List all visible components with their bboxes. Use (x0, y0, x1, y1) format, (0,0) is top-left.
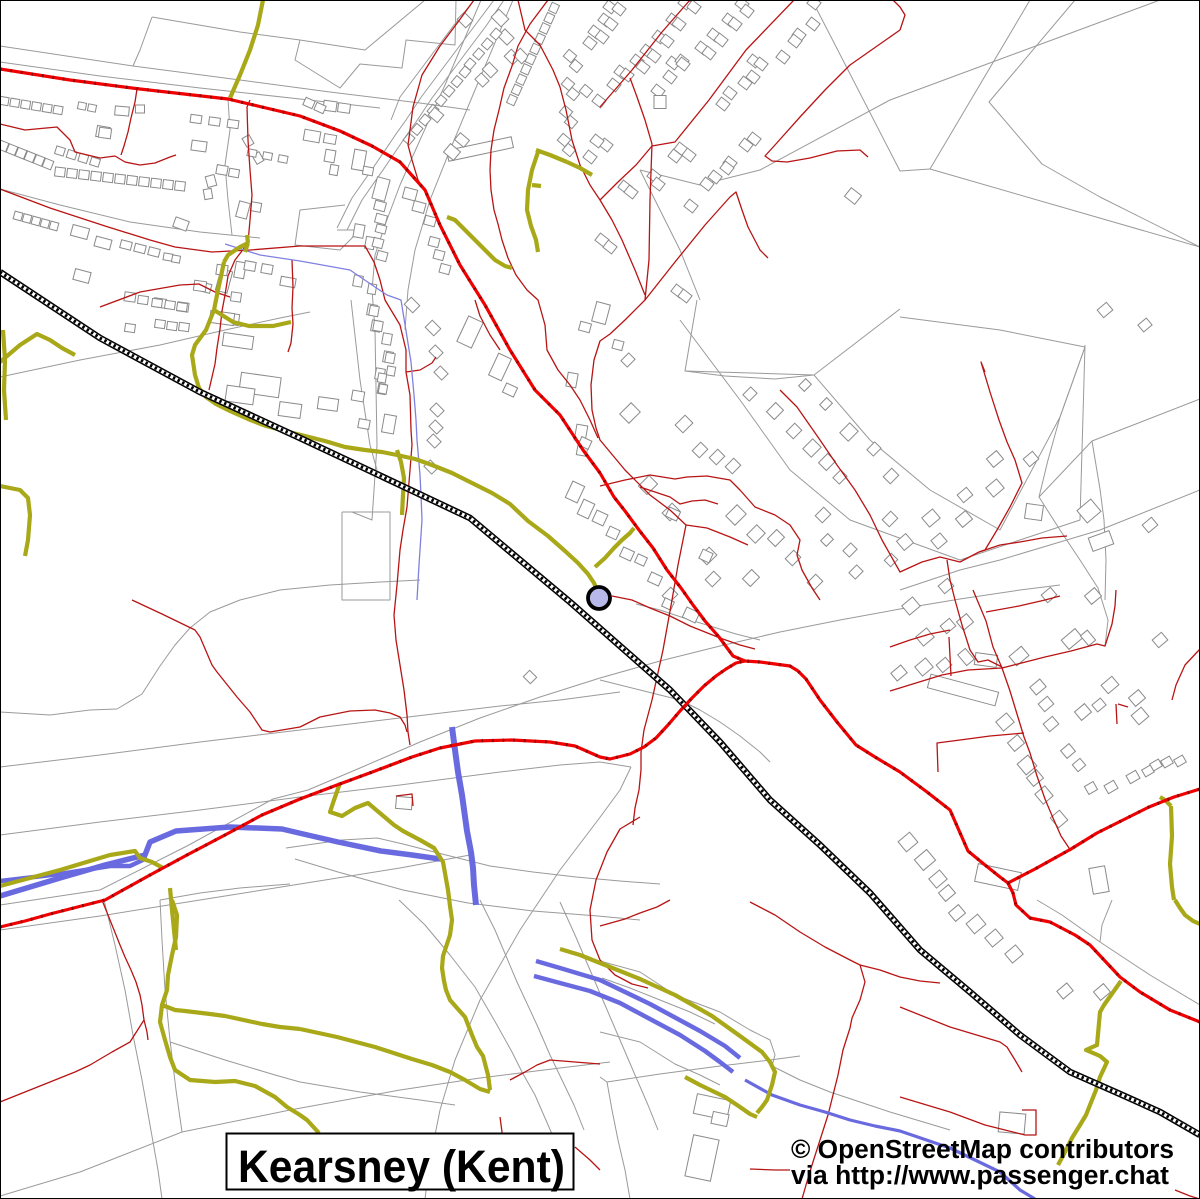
svg-text:Kearsney (Kent): Kearsney (Kent) (238, 1141, 565, 1192)
svg-text:via http://www.passenger.chat: via http://www.passenger.chat (791, 1162, 1170, 1190)
svg-text:© OpenStreetMap contributors: © OpenStreetMap contributors (791, 1136, 1174, 1164)
